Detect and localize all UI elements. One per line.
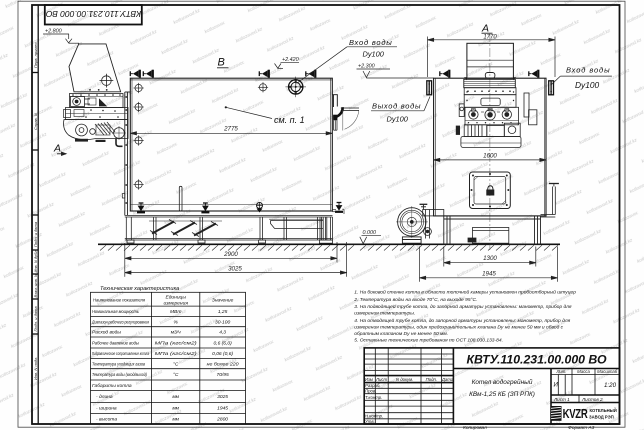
svg-text:1300: 1300	[483, 255, 497, 262]
svg-text:2800: 2800	[216, 416, 228, 422]
svg-text:Техническая характеристика: Техническая характеристика	[100, 286, 179, 292]
svg-text:Н.контр.: Н.контр.	[365, 414, 383, 419]
svg-text:2775: 2775	[223, 126, 238, 133]
svg-text:30-100: 30-100	[215, 319, 231, 325]
svg-text:1:20: 1:20	[604, 382, 617, 389]
svg-text:+2.420: +2.420	[282, 57, 299, 63]
svg-text:Т.контр.: Т.контр.	[365, 395, 382, 400]
svg-text:1. На боковой стенке котла в: 1. На боковой стенке котла в области топ…	[354, 288, 576, 295]
svg-text:3. На подводящей трубе котла,: 3. На подводящей трубе котла, до запорно…	[354, 303, 572, 310]
svg-text:м3/ч: м3/ч	[171, 330, 181, 336]
svg-text:КВТУ.110.231.00.000 ВО: КВТУ.110.231.00.000 ВО	[466, 353, 607, 367]
svg-text:Вход воды: Вход воды	[349, 38, 393, 47]
svg-text:+2.800: +2.800	[45, 29, 62, 35]
svg-text:0,6 (6,0): 0,6 (6,0)	[213, 340, 232, 346]
svg-text:измерения температуры.: измерения температуры.	[354, 312, 415, 317]
svg-text:- высота: - высота	[96, 417, 117, 422]
svg-text:1945: 1945	[482, 270, 496, 277]
svg-text:см. п. 1: см. п. 1	[274, 115, 305, 125]
svg-text:0,06 (0,6): 0,06 (0,6)	[212, 351, 233, 357]
svg-text:Значение: Значение	[212, 298, 234, 304]
svg-text:1,25: 1,25	[218, 309, 228, 315]
svg-text:мм: мм	[172, 407, 179, 412]
svg-text:Dy100: Dy100	[575, 80, 600, 90]
svg-text:Вход воды: Вход воды	[566, 66, 611, 75]
svg-text:КВТУ.110.231.00.000 ВО: КВТУ.110.231.00.000 ВО	[45, 9, 141, 19]
svg-text:Температура уходящих газов: Температура уходящих газов	[92, 361, 145, 367]
svg-text:5. Остальные технические треб: 5. Остальные технические требования по О…	[354, 338, 503, 344]
svg-text:1600: 1600	[483, 152, 497, 159]
svg-text:Взам. инв. N: Взам. инв. N	[33, 274, 38, 297]
svg-text:°С: °С	[173, 361, 179, 367]
svg-text:°С: °С	[173, 372, 179, 378]
svg-text:Рабочее давление воды: Рабочее давление воды	[92, 340, 139, 346]
svg-text:3025: 3025	[228, 265, 242, 272]
svg-text:2900: 2900	[223, 251, 238, 258]
svg-text:ЗАВОД РЭП: ЗАВОД РЭП	[589, 415, 614, 420]
svg-text:4,3: 4,3	[219, 330, 226, 336]
svg-text:- ширина: - ширина	[96, 407, 117, 412]
svg-text:Подп. и дата: Подп. и дата	[33, 221, 38, 247]
svg-text:2. Температура воды на входе: 2. Температура воды на входе 70°С, на вы…	[353, 297, 477, 303]
svg-text:Номинальная мощность: Номинальная мощность	[92, 309, 139, 315]
svg-text:мм: мм	[172, 417, 179, 422]
svg-text:Дата: Дата	[441, 377, 454, 382]
svg-text:Температура воды (вход/выход): Температура воды (вход/выход)	[92, 372, 147, 378]
svg-text:КВм-1,25 КБ (ЗП РПК): КВм-1,25 КБ (ЗП РПК)	[469, 391, 535, 398]
svg-text:70/95: 70/95	[216, 372, 229, 378]
svg-text:Расход воды: Расход воды	[92, 330, 121, 336]
svg-text:Масса: Масса	[577, 369, 590, 374]
svg-text:МПа (кгс/см2): МПа (кгс/см2)	[155, 351, 197, 357]
svg-text:МПа (кгс/см2): МПа (кгс/см2)	[155, 340, 197, 346]
svg-text:Гидравлическое сопротивление к: Гидравлическое сопротивление котла	[92, 351, 149, 357]
svg-text:измерения температуры, один п: измерения температуры, один предохраните…	[354, 325, 563, 331]
svg-text:Масштаб: Масштаб	[597, 369, 618, 374]
svg-text:А: А	[53, 143, 61, 155]
svg-text:Копировал: Копировал	[463, 425, 487, 430]
svg-text:И: И	[554, 382, 559, 389]
svg-text:Подп.: Подп.	[426, 377, 437, 382]
svg-text:КОТЕЛЬНЫЙ: КОТЕЛЬНЫЙ	[590, 408, 617, 413]
svg-text:1770: 1770	[483, 35, 497, 41]
svg-text:обратным клапаном Dу не менее: обратным клапаном Dу не менее 50 мм.	[354, 331, 448, 337]
svg-text:В: В	[218, 57, 225, 69]
svg-text:Диапазон рабочего регулировани: Диапазон рабочего регулирования	[91, 319, 149, 325]
svg-text:Формат А3: Формат А3	[568, 425, 595, 430]
svg-text:Инв. N подл.: Инв. N подл.	[33, 357, 38, 380]
svg-text:Dy100: Dy100	[387, 115, 409, 124]
svg-text:+2.300: +2.300	[358, 64, 375, 70]
svg-text:- длина: - длина	[96, 394, 113, 400]
svg-text:Подп. и дата: Подп. и дата	[33, 306, 38, 332]
svg-text:Утв.: Утв.	[365, 419, 375, 424]
svg-text:А: А	[481, 23, 489, 35]
svg-text:измерения: измерения	[163, 302, 188, 307]
svg-text:Листов 2: Листов 2	[581, 397, 603, 402]
svg-text:Наименование показателя: Наименование показателя	[93, 298, 145, 304]
svg-text:Перв. примен.: Перв. примен.	[33, 41, 38, 68]
svg-text:Dy100: Dy100	[363, 50, 385, 59]
svg-text:Лист: Лист	[375, 377, 387, 382]
svg-text:0.000: 0.000	[363, 230, 377, 236]
svg-text:KVZR: KVZR	[563, 408, 588, 422]
svg-text:Пров.: Пров.	[365, 389, 376, 394]
svg-text:Лит.: Лит.	[555, 369, 566, 374]
svg-text:Лист 1: Лист 1	[553, 397, 570, 402]
svg-text:1945: 1945	[217, 406, 228, 412]
svg-text:Справ. N: Справ. N	[33, 113, 38, 130]
svg-text:N докум.: N докум.	[396, 377, 413, 382]
svg-text:Изм: Изм	[365, 377, 373, 382]
svg-text:Габариты котла: Габариты котла	[92, 383, 132, 389]
svg-text:Разраб.: Разраб.	[365, 383, 381, 388]
svg-text:Котел водогрейный: Котел водогрейный	[472, 378, 533, 386]
svg-text:мм: мм	[172, 395, 179, 400]
svg-text:Выход воды: Выход воды	[372, 102, 421, 111]
svg-text:4. На отводящей трубе котла,: 4. На отводящей трубе котла, до запорной…	[354, 317, 570, 324]
svg-text:Единицы: Единицы	[165, 295, 186, 301]
svg-text:3025: 3025	[217, 394, 228, 400]
svg-text:не более 220: не более 220	[207, 361, 239, 367]
svg-text:Инв. N дубл.: Инв. N дубл.	[33, 249, 38, 272]
svg-text:%: %	[174, 319, 179, 325]
svg-text:МВт: МВт	[170, 309, 181, 315]
